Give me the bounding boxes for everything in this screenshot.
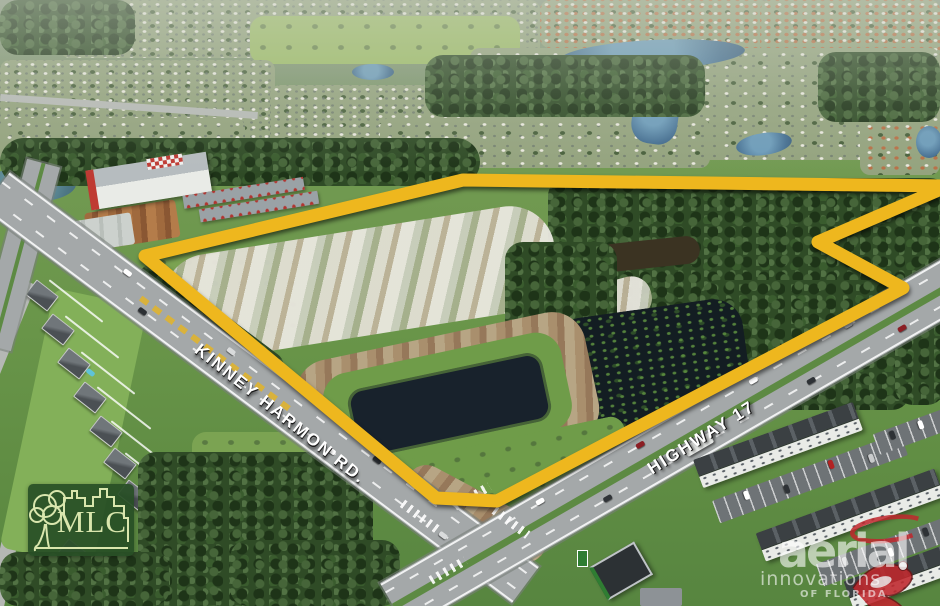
mlc-logo-text: MLC: [52, 506, 132, 537]
atmospheric-haze: [0, 0, 940, 175]
gas-station-sign: [577, 550, 588, 567]
forest: [0, 552, 170, 606]
gas-station-building: [640, 588, 682, 606]
mlc-logo: MLC: [28, 484, 134, 556]
aerial-photo: KINNEY HARMON RD. HIGHWAY 17 MLC aerial …: [0, 0, 940, 606]
watermark-innovations: innovations: [760, 570, 881, 589]
watermark-of-florida: OF FLORIDA: [800, 590, 888, 600]
forest: [230, 540, 400, 606]
parking-lot: [873, 407, 940, 455]
